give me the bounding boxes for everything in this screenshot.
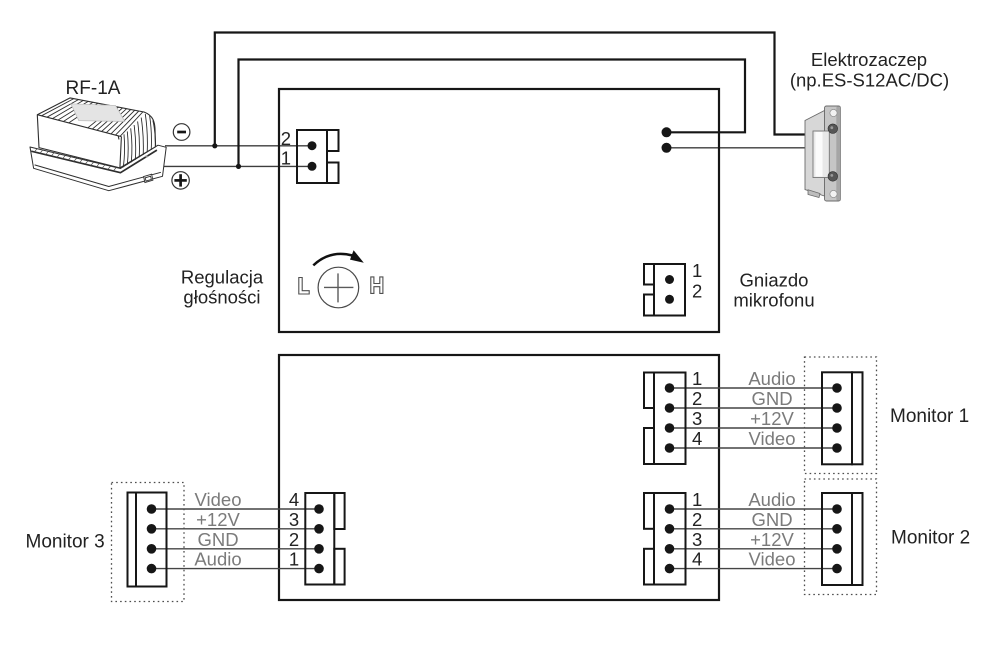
svg-text:GND: GND xyxy=(751,388,792,409)
svg-text:mikrofonu: mikrofonu xyxy=(733,290,814,311)
svg-text:3: 3 xyxy=(692,408,702,429)
svg-text:głośności: głośności xyxy=(183,287,260,308)
svg-text:2: 2 xyxy=(692,509,702,530)
svg-text:+12V: +12V xyxy=(750,529,794,550)
svg-text:GND: GND xyxy=(197,529,238,550)
svg-text:Video: Video xyxy=(195,489,242,510)
svg-text:(np.ES-S12AC/DC): (np.ES-S12AC/DC) xyxy=(790,70,949,91)
svg-text:2: 2 xyxy=(281,128,291,149)
svg-text:Audio: Audio xyxy=(748,489,795,510)
svg-text:4: 4 xyxy=(692,549,702,570)
svg-text:1: 1 xyxy=(692,489,702,510)
svg-text:+12V: +12V xyxy=(750,408,794,429)
svg-text:Audio: Audio xyxy=(748,368,795,389)
svg-text:4: 4 xyxy=(289,489,299,510)
svg-text:Monitor 1: Monitor 1 xyxy=(890,406,969,427)
svg-text:1: 1 xyxy=(289,549,299,570)
svg-text:2: 2 xyxy=(692,388,702,409)
svg-text:4: 4 xyxy=(692,428,702,449)
svg-text:Video: Video xyxy=(749,549,796,570)
svg-text:GND: GND xyxy=(751,509,792,530)
svg-text:1: 1 xyxy=(281,148,291,169)
svg-text:Video: Video xyxy=(749,428,796,449)
svg-text:Gniazdo: Gniazdo xyxy=(740,270,809,291)
svg-text:Monitor 2: Monitor 2 xyxy=(891,528,970,549)
svg-text:3: 3 xyxy=(692,529,702,550)
svg-text:1: 1 xyxy=(692,368,702,389)
svg-text:3: 3 xyxy=(289,509,299,530)
svg-text:1: 1 xyxy=(692,260,702,281)
svg-text:2: 2 xyxy=(692,281,702,302)
svg-text:Monitor 3: Monitor 3 xyxy=(26,532,105,553)
svg-text:Elektrozaczep: Elektrozaczep xyxy=(811,49,927,70)
svg-text:Regulacja: Regulacja xyxy=(181,267,264,288)
svg-text:Audio: Audio xyxy=(194,549,241,570)
svg-text:RF-1A: RF-1A xyxy=(66,78,121,99)
svg-text:+12V: +12V xyxy=(196,509,240,530)
svg-text:2: 2 xyxy=(289,529,299,550)
